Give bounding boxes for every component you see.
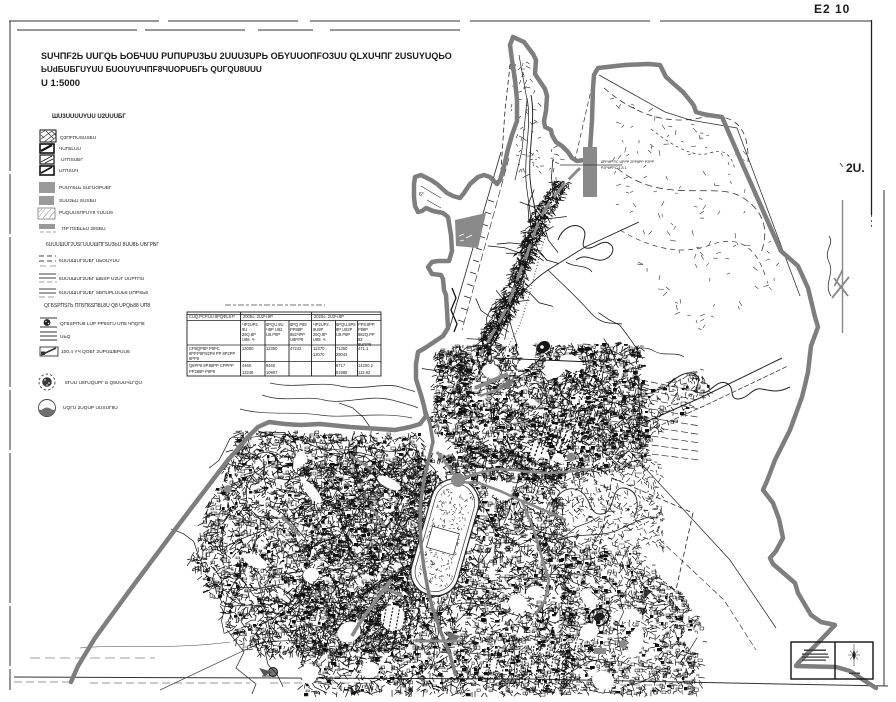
svg-text:UГПSUЧ: UГПSUЧ	[59, 168, 78, 174]
svg-text:8ГUU U8ГUQUРГ Б Q8UUUЧLГQU: 8ГUU U8ГUQUРГ Б Q8UUUЧLГQU	[65, 380, 143, 386]
svg-text:14200.2: 14200.2	[358, 363, 374, 368]
svg-text:SUЧПF2Ь UUГQЬ ЬОБЧUU РUПUРU3ЬU: SUЧПF2Ь UUГQЬ ЬОБЧUU РUПUРU3ЬU 2UUU3UРЬ …	[41, 51, 452, 61]
svg-text:Р2Р8РР.С 1.8.1: Р2Р8РР.С 1.8.1	[601, 166, 627, 170]
svg-text:6UUUШUГ2USГUUUШПГSU3ЬU 8UU8Ь U: 6UUUШUГ2USГUUUШПГSU3ЬU 8UU8Ь UБГРБГ	[46, 242, 159, 248]
svg-text:6UUUШUГ2UБГ ШБSР U2UГ UUРГПU: 6UUUШUГ2UБГ ШБSР U2UГ UUРГПU	[59, 276, 145, 282]
svg-text:2U.: 2U.	[846, 161, 865, 175]
svg-text:QГБSРПSГЬ ПГБП6SП8L8U Q8 UРQЬ8: QГБSРПSГЬ ПГБП6SП8L8U Q8 UРQЬ88 UП8	[44, 303, 150, 309]
svg-text:12350: 12350	[266, 346, 278, 351]
svg-text:РUUYБLЬ SUГUОРUБГ: РUUYБLЬ SUГUОРUБГ	[59, 185, 112, 191]
svg-text:U88. Ч: U88. Ч	[313, 337, 326, 342]
svg-text:13000: 13000	[242, 346, 254, 351]
svg-text:51985: 51985	[336, 370, 348, 375]
svg-text:UЬQ: UЬQ	[60, 334, 71, 340]
svg-text:2020о. 2U2Ч.8Р: 2020о. 2U2Ч.8Р	[314, 314, 344, 319]
svg-text:471.1: 471.1	[358, 346, 369, 351]
svg-text:Q3ПFПUSUSБU: Q3ПFПUSUSБU	[60, 135, 97, 141]
svg-text:UГПSUБГ: UГПSUБГ	[61, 157, 83, 163]
svg-text:6UUUШUГ2UБГ UЬОUYUU: 6UUUШUГ2UБГ UЬОUYUU	[59, 258, 120, 264]
svg-text:Q8РР8 8Р.88РР СРРРР: Q8РР8 8Р.88РР СРРРР	[189, 363, 234, 368]
svg-text:U8.Р8Р: U8.Р8Р	[336, 332, 350, 337]
svg-text:8РР8: 8РР8	[189, 356, 200, 361]
svg-text:71350: 71350	[336, 346, 348, 351]
svg-text:ЧUГБLUU: ЧUГБLUU	[59, 146, 82, 152]
svg-text:ПР ПSБLЬU 28SБU: ПР ПSБLЬU 28SБU	[62, 226, 106, 232]
svg-text:Е2 10: Е2 10	[814, 2, 850, 16]
svg-text:47242: 47242	[290, 346, 302, 351]
svg-text:6°: 6°	[419, 192, 424, 198]
svg-text:112.82: 112.82	[358, 370, 371, 375]
svg-text:ШU3UUUUYUU U2UUUБГ: ШU3UUUUYUU U2UUUБГ	[52, 114, 126, 120]
svg-text:8РР.8Р РС UРРР 2РР8РР Р2РР: 8РР.8Р РС UРРР 2РР8РР Р2РР	[601, 160, 655, 164]
svg-text:РUQUUSПFUY8 YUUU9: РUQUUSПFUY8 YUUU9	[59, 210, 113, 216]
svg-text:ЬUdБUБГUYUU БUОUYUЧПF8ЧUОРUБГЬ: ЬUdБUБГUYUU БUОUYUЧПF8ЧUОРUБГЬ QUГQU8UUU	[41, 65, 262, 74]
svg-text:29043: 29043	[336, 352, 348, 357]
svg-text:РР288Р Р8Р8: РР288Р Р8Р8	[189, 369, 216, 374]
svg-text:13070: 13070	[313, 352, 325, 357]
svg-text:9450: 9450	[266, 363, 276, 368]
svg-text:12370: 12370	[313, 346, 325, 351]
svg-text:13248: 13248	[242, 370, 254, 375]
svg-text:10907: 10907	[266, 370, 278, 375]
svg-text:U88. Ч: U88. Ч	[242, 337, 255, 342]
svg-text:100,4 YЧ QОБГ 2UРUШБРUU8: 100,4 YЧ QОБГ 2UРUШБРUU8	[61, 349, 130, 355]
svg-text:U8Р.Р8: U8Р.Р8	[290, 337, 304, 342]
svg-text:QГБSРПU8 LUР РР8SГU UП8 ЧПQП8: QГБSРПU8 LUР РР8SГU UП8 ЧПQП8	[60, 321, 145, 327]
svg-text:U8.Р8Р: U8.Р8Р	[266, 332, 280, 337]
svg-text:UQГU 2UQUР UUSUГ8U: UQГU 2UQUР UUSUГ8U	[63, 405, 118, 411]
svg-text:СUQ.РСР.UU 8РQФL8.Р: СUQ.РСР.UU 8РQФL8.Р	[189, 314, 235, 319]
svg-text:8717: 8717	[336, 363, 346, 368]
svg-text:446K: 446K	[242, 363, 252, 368]
svg-text:U 1:5000: U 1:5000	[41, 78, 80, 89]
svg-text:6UUUШUГ2UБГ SБПUРLUUЬ8 UПРSЬ8: 6UUUШUГ2UБГ SБПUРLUUЬ8 UПРSЬ8	[59, 290, 148, 296]
svg-text:2005о. 2U2Ч.8Р: 2005о. 2U2Ч.8Р	[243, 314, 273, 319]
svg-text:SUU3ЬU SUSБU: SUU3ЬU SUSБU	[59, 198, 97, 204]
